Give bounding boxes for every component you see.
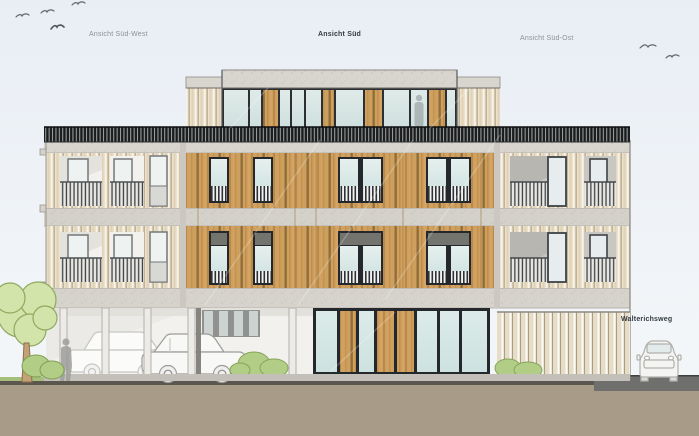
ground-line: [0, 381, 600, 385]
ground: [0, 375, 699, 436]
architectural-elevation-page: Ansicht Süd-West Ansicht Süd Ansicht Süd…: [0, 0, 699, 436]
window-tall: [150, 232, 167, 282]
elevation-drawing: [0, 0, 699, 436]
attic-floor: [186, 70, 500, 127]
window-single: [253, 231, 273, 285]
balcony: [60, 156, 102, 206]
roof-railing-band: [44, 127, 630, 142]
window-single: [253, 157, 273, 203]
elevation-label-sued-west: Ansicht Süd-West: [89, 31, 148, 38]
pier: [494, 140, 500, 308]
balcony: [584, 232, 616, 282]
balcony: [110, 156, 144, 206]
dark-pier: [196, 308, 201, 377]
window-double: [338, 157, 383, 203]
wood-door: [397, 311, 414, 372]
wood-door: [340, 311, 356, 372]
window-tall: [150, 156, 167, 206]
carport: [46, 308, 313, 383]
balcony: [110, 232, 144, 282]
elevation-label-sued-ost: Ansicht Süd-Ost: [520, 35, 574, 42]
slat-fence: [495, 312, 630, 378]
balcony: [584, 156, 616, 206]
elevation-label-sued: Ansicht Süd: [318, 31, 358, 38]
balcony: [510, 156, 550, 206]
lobby-windows: [202, 310, 260, 337]
balcony: [510, 232, 550, 282]
base-strip: [44, 374, 630, 381]
pier: [180, 140, 186, 308]
balcony: [60, 232, 102, 282]
window-single: [209, 231, 229, 285]
window-tall: [548, 157, 566, 206]
window-double: [426, 231, 471, 285]
street-name-label: Walterichsweg: [621, 316, 672, 323]
window-single: [209, 157, 229, 203]
window-tall: [548, 233, 566, 282]
earth: [0, 384, 699, 436]
window-double: [426, 157, 471, 203]
storefront: [313, 308, 490, 375]
